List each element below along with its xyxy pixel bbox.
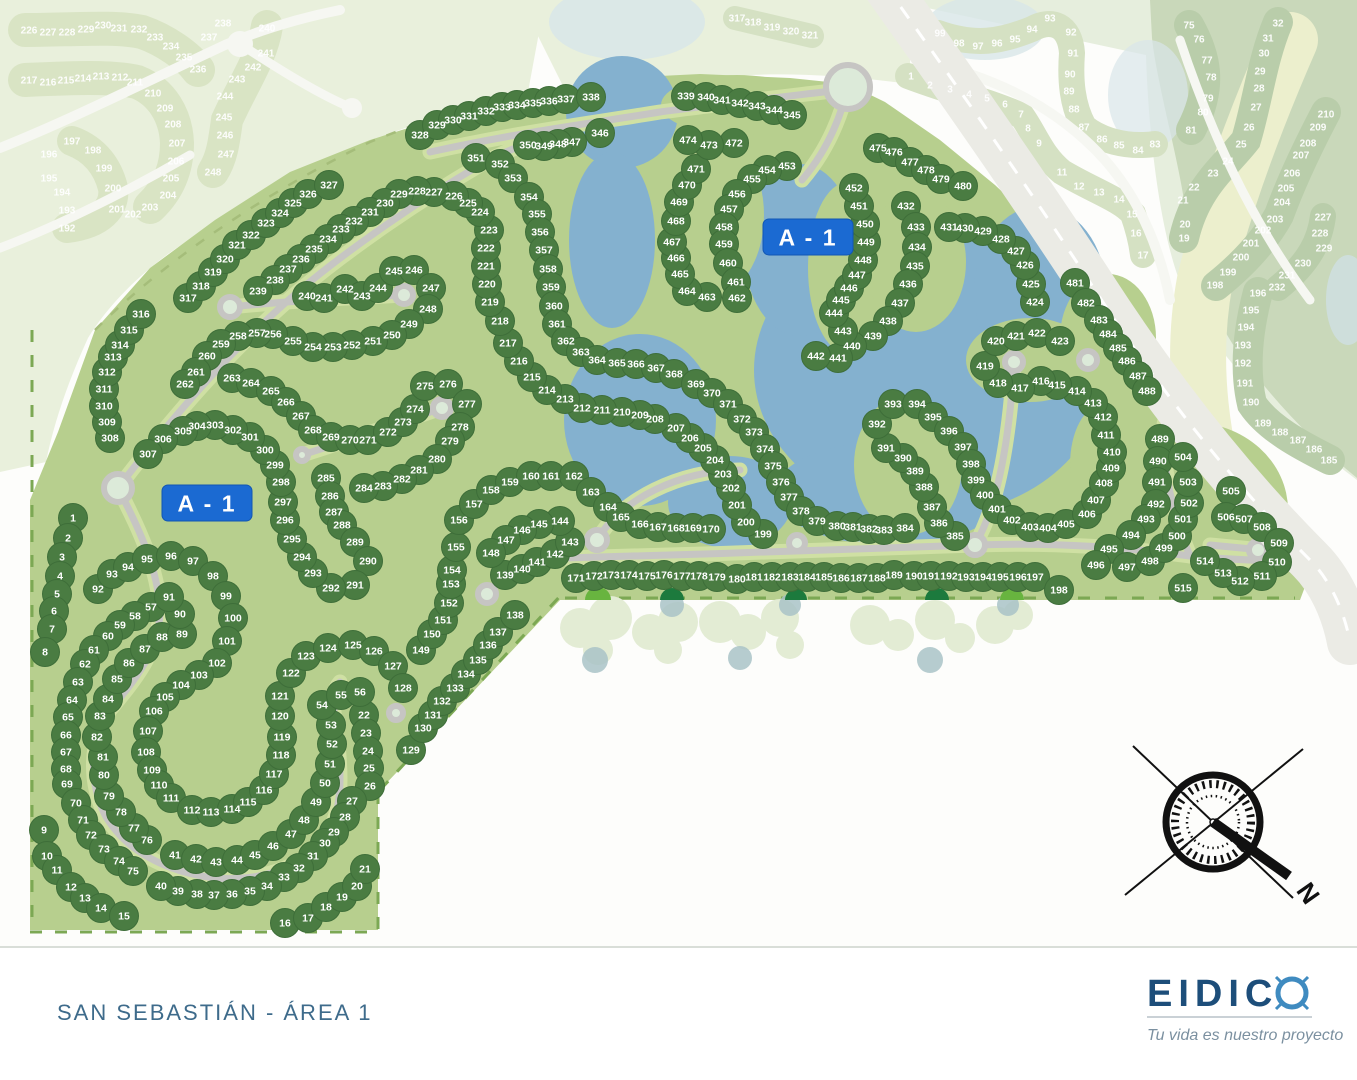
faded-lot-number: 5	[984, 94, 990, 105]
lot-number: 26	[364, 781, 376, 793]
lot-number: 437	[891, 298, 909, 310]
lot-number: 270	[341, 435, 359, 447]
faded-lot-number: 6	[1002, 100, 1008, 111]
lot-number: 371	[719, 399, 737, 411]
faded-lot-number: 247	[218, 150, 235, 161]
lot-number: 511	[1254, 571, 1271, 583]
lot-number: 471	[687, 164, 705, 176]
lot-number: 430	[956, 223, 974, 235]
faded-lot-number: 14	[1113, 195, 1125, 206]
lot-number: 399	[967, 475, 985, 487]
lot-number: 294	[293, 552, 311, 564]
lot-number: 46	[267, 841, 279, 853]
lot-number: 1	[70, 513, 76, 525]
lot-number: 99	[220, 591, 232, 603]
lot-number: 310	[95, 401, 113, 413]
lot-number: 500	[1168, 531, 1186, 543]
lot-number: 86	[123, 658, 135, 670]
faded-lot-number: 320	[783, 27, 800, 38]
lot-number: 174	[620, 570, 638, 582]
lot-number: 298	[272, 477, 290, 489]
lot-number: 482	[1077, 298, 1095, 310]
faded-lot-number: 97	[972, 42, 984, 53]
lot-number: 116	[256, 785, 273, 797]
lot-number: 52	[326, 739, 338, 751]
lot-number: 247	[422, 283, 440, 295]
lot-number: 53	[325, 720, 337, 732]
lot-number: 501	[1174, 514, 1192, 526]
lot-number: 487	[1129, 371, 1147, 383]
lot-number: 439	[864, 331, 882, 343]
lot-number: 287	[325, 507, 343, 519]
lot-number: 388	[915, 482, 933, 494]
faded-lot-number: 243	[229, 75, 246, 86]
faded-lot-number: 78	[1205, 73, 1217, 84]
lot-number: 267	[292, 411, 310, 423]
faded-lot-number: 227	[1315, 213, 1332, 224]
lot-number: 432	[897, 201, 915, 213]
lot-number: 172	[585, 571, 603, 583]
faded-lot-number: 87	[1078, 123, 1090, 134]
lot-number: 27	[346, 796, 358, 808]
area-badge: A - 1	[162, 485, 252, 521]
lot-number: 398	[962, 459, 980, 471]
lot-number: 70	[70, 798, 82, 810]
lot-number: 449	[857, 237, 875, 249]
lot-number: 66	[60, 730, 72, 742]
lot-number: 251	[364, 336, 382, 348]
lot-number: 109	[143, 765, 161, 777]
faded-lot-number: 32	[1272, 19, 1284, 30]
lot-number: 377	[780, 492, 798, 504]
lot-number: 442	[807, 351, 825, 363]
lot-number: 431	[940, 222, 958, 234]
lot-number: 163	[582, 487, 600, 499]
lot-number: 496	[1087, 560, 1105, 572]
faded-lot-number: 192	[1235, 359, 1252, 370]
lot-number: 8	[42, 647, 48, 659]
lot-number: 131	[424, 710, 442, 722]
faded-lot-number: 318	[745, 18, 762, 29]
lot-number: 309	[98, 417, 116, 429]
lot-number: 474	[679, 135, 697, 147]
lot-number: 481	[1066, 278, 1084, 290]
lot-number: 281	[410, 465, 428, 477]
lot-number: 44	[231, 855, 243, 867]
lot-number: 293	[304, 568, 322, 580]
lot-number: 113	[203, 807, 220, 819]
lot-number: 80	[98, 770, 110, 782]
lot-number: 7	[49, 624, 55, 636]
lot-number: 409	[1102, 463, 1120, 475]
faded-lot-number: 209	[157, 104, 174, 115]
faded-lot-number: 232	[131, 25, 148, 36]
lot-number: 459	[715, 239, 733, 251]
lot-number: 16	[279, 918, 291, 930]
lot-number: 43	[210, 857, 222, 869]
lot-number: 498	[1141, 556, 1159, 568]
lot-number: 263	[223, 373, 241, 385]
lot-number: 245	[385, 266, 403, 278]
lot-number: 391	[877, 443, 895, 455]
lot-number: 341	[713, 95, 731, 107]
lot-number: 202	[722, 483, 740, 495]
lot-number: 433	[907, 222, 925, 234]
lot-number: 62	[79, 659, 91, 671]
lot-number: 387	[923, 502, 941, 514]
lot-number: 2	[65, 533, 71, 545]
lot-number: 196	[1009, 572, 1027, 584]
lot-number: 170	[702, 524, 720, 536]
lot-number: 301	[241, 432, 259, 444]
lot-number: 103	[190, 670, 208, 682]
lot-number: 157	[465, 499, 483, 511]
lot-number: 407	[1087, 495, 1105, 507]
faded-lot-number: 16	[1130, 229, 1142, 240]
lot-number: 359	[542, 282, 560, 294]
lot-number: 146	[513, 525, 531, 537]
faded-lot-number: 226	[21, 26, 38, 37]
lot-number: 279	[441, 436, 459, 448]
lot-number: 440	[843, 341, 861, 353]
lot-number: 392	[868, 419, 886, 431]
lot-number: 268	[304, 425, 322, 437]
lot-number: 393	[884, 399, 902, 411]
faded-lot-number: 79	[1202, 94, 1214, 105]
lot-number: 344	[765, 105, 783, 117]
faded-lot-number: 80	[1197, 108, 1209, 119]
lot-number: 466	[667, 253, 685, 265]
faded-lot-number: 24	[1222, 157, 1234, 168]
lot-number: 159	[501, 477, 519, 489]
lot-number: 227	[425, 187, 443, 199]
lot-number: 57	[145, 602, 157, 614]
faded-lot-number: 235	[176, 53, 193, 64]
lot-number: 302	[224, 425, 242, 437]
lot-number: 295	[283, 534, 301, 546]
lot-number: 155	[447, 542, 465, 554]
lot-number: 45	[249, 850, 261, 862]
lot-number: 101	[218, 636, 236, 648]
lot-number: 384	[896, 523, 914, 535]
lot-number: 117	[266, 769, 283, 781]
lot-number: 12	[65, 882, 77, 894]
lot-number: 152	[440, 598, 458, 610]
lot-number: 490	[1149, 456, 1167, 468]
faded-lot-number: 210	[145, 89, 162, 100]
lot-number: 469	[670, 197, 688, 209]
lot-number: 492	[1147, 499, 1165, 511]
lot-number: 314	[111, 340, 129, 352]
lot-number: 126	[365, 646, 383, 658]
lot-number: 454	[758, 165, 776, 177]
lot-number: 15	[118, 911, 130, 923]
lot-number: 351	[467, 153, 485, 165]
faded-lot-number: 319	[764, 23, 781, 34]
lot-number: 84	[102, 694, 114, 706]
lot-number: 421	[1007, 331, 1025, 343]
lot-number: 127	[384, 661, 402, 673]
lot-number: 104	[172, 680, 190, 692]
faded-lot-number: 207	[1293, 151, 1310, 162]
lot-number: 110	[151, 780, 168, 792]
faded-lot-number: 245	[216, 113, 233, 124]
lot-number: 212	[573, 403, 591, 415]
lot-number: 395	[924, 412, 942, 424]
lot-number: 195	[991, 572, 1009, 584]
lot-number: 160	[522, 471, 540, 483]
faded-lot-number: 205	[1278, 184, 1295, 195]
lot-number: 148	[482, 548, 500, 560]
faded-lot-number: 228	[1312, 229, 1329, 240]
lot-number: 358	[539, 264, 557, 276]
lot-number: 194	[974, 572, 992, 584]
lot-number: 197	[1026, 572, 1044, 584]
faded-lot-number: 208	[165, 120, 182, 131]
faded-lot-number: 205	[163, 174, 180, 185]
lot-number: 455	[743, 174, 761, 186]
lot-number: 111	[163, 793, 180, 805]
lot-number: 189	[885, 570, 903, 582]
faded-lot-number: 21	[1177, 196, 1189, 207]
lot-number: 4	[57, 571, 63, 583]
lot-number: 513	[1214, 568, 1232, 580]
lot-number: 34	[261, 881, 273, 893]
lot-number: 326	[299, 189, 317, 201]
lot-number: 129	[402, 745, 420, 757]
lot-number: 201	[728, 500, 746, 512]
lot-number: 278	[451, 422, 469, 434]
lot-number: 13	[79, 893, 91, 905]
lot-number: 257	[248, 328, 266, 340]
faded-lot-number: 88	[1068, 105, 1080, 116]
lot-number: 451	[850, 201, 868, 213]
lot-number: 297	[274, 497, 292, 509]
lot-map-page: 1234567891011121314151617181920212223242…	[0, 0, 1357, 1080]
lot-number: 505	[1222, 486, 1240, 498]
faded-lot-number: 30	[1258, 49, 1270, 60]
lot-number: 82	[91, 732, 103, 744]
faded-lot-number: 207	[169, 139, 186, 150]
lot-number: 179	[708, 572, 726, 584]
lot-number: 420	[987, 336, 1005, 348]
lot-number: 285	[317, 473, 335, 485]
lot-number: 342	[731, 98, 749, 110]
lot-number: 54	[316, 700, 328, 712]
lot-number: 64	[66, 695, 78, 707]
faded-lot-number: 22	[1188, 183, 1200, 194]
faded-lot-number: 91	[1067, 49, 1079, 60]
faded-lot-number: 244	[217, 92, 234, 103]
lot-number: 136	[479, 640, 497, 652]
lot-number: 386	[930, 518, 948, 530]
lot-number: 355	[528, 209, 546, 221]
lot-number: 313	[104, 352, 122, 364]
faded-lot-number: 201	[109, 205, 126, 216]
lot-number: 3	[59, 552, 65, 564]
faded-lot-number: 185	[1321, 456, 1338, 467]
faded-lot-number: 31	[1262, 34, 1274, 45]
lot-number: 303	[206, 420, 224, 432]
lot-number: 85	[111, 674, 123, 686]
faded-lot-number: 241	[258, 49, 275, 60]
lot-number: 19	[336, 892, 348, 904]
faded-lot-number: 191	[1237, 379, 1254, 390]
lot-number: 188	[868, 573, 886, 585]
lot-number: 221	[477, 261, 495, 273]
lot-number: 226	[445, 191, 463, 203]
lot-number: 299	[266, 460, 284, 472]
lot-number: 307	[139, 449, 157, 461]
lot-number: 506	[1217, 512, 1235, 524]
lot-number: 33	[278, 872, 290, 884]
lot-number: 271	[359, 435, 377, 447]
lot-number: 460	[719, 258, 737, 270]
lot-number: 71	[77, 815, 89, 827]
lot-number: 512	[1231, 576, 1249, 588]
lot-number: 213	[556, 394, 574, 406]
lot-number: 283	[374, 481, 392, 493]
lot-number: 336	[540, 96, 558, 108]
faded-lot-number: 206	[1284, 169, 1301, 180]
lot-number: 402	[1003, 515, 1021, 527]
lot-number: 49	[310, 797, 322, 809]
faded-lot-number: 186	[1306, 445, 1323, 456]
lot-number: 383	[875, 525, 893, 537]
lot-number: 89	[176, 629, 188, 641]
lot-number: 479	[932, 174, 950, 186]
lot-number: 276	[439, 379, 457, 391]
lot-number: 87	[139, 644, 151, 656]
lot-number: 144	[551, 516, 569, 528]
faded-lot-number: 200	[1233, 253, 1250, 264]
lot-number: 108	[137, 747, 155, 759]
lot-number: 312	[98, 367, 116, 379]
lot-number: 515	[1174, 583, 1192, 595]
lot-number: 38	[191, 889, 203, 901]
faded-lot-number: 89	[1063, 87, 1075, 98]
lot-number: 258	[229, 331, 247, 343]
lot-number: 199	[754, 529, 772, 541]
faded-lot-number: 195	[1243, 306, 1260, 317]
lot-number: 121	[271, 691, 289, 703]
faded-lot-number: 190	[1243, 398, 1260, 409]
faded-lot-number: 9	[1036, 139, 1042, 150]
faded-lot-number: 236	[190, 65, 207, 76]
lot-number: 32	[293, 863, 305, 875]
faded-lot-number: 28	[1253, 84, 1265, 95]
lot-number: 158	[482, 485, 500, 497]
lot-number: 210	[613, 407, 631, 419]
lot-number: 214	[538, 385, 556, 397]
lot-number: 93	[106, 569, 118, 581]
lot-number: 339	[677, 91, 695, 103]
compass-north-label: N	[1291, 877, 1326, 910]
faded-lot-number: 8	[1025, 124, 1031, 135]
lot-number: 412	[1094, 412, 1112, 424]
faded-lot-number: 233	[147, 33, 164, 44]
lot-number: 190	[905, 571, 923, 583]
lot-number: 9	[41, 825, 47, 837]
lot-number: 91	[163, 592, 175, 604]
lot-number: 360	[545, 301, 563, 313]
faded-lot-number: 187	[1290, 436, 1307, 447]
faded-lot-number: 202	[125, 210, 142, 221]
lot-number: 185	[815, 572, 833, 584]
lot-number: 457	[720, 204, 738, 216]
lot-number: 465	[671, 269, 689, 281]
lot-number: 72	[85, 830, 97, 842]
faded-lot-number: 19	[1178, 234, 1190, 245]
lot-number: 162	[565, 471, 583, 483]
lot-number: 217	[499, 338, 517, 350]
lot-number: 356	[531, 227, 549, 239]
lot-number: 317	[179, 293, 197, 305]
lot-number: 180	[728, 574, 746, 586]
lot-number: 182	[763, 572, 781, 584]
lot-number: 18	[320, 902, 332, 914]
lot-number: 289	[346, 537, 364, 549]
faded-lot-number: 196	[1250, 289, 1267, 300]
faded-lot-number: 234	[163, 42, 180, 53]
faded-lot-number: 2	[927, 81, 933, 92]
lot-number: 319	[204, 267, 222, 279]
lot-number: 373	[745, 427, 763, 439]
faded-lot-number: 12	[1073, 182, 1085, 193]
lot-number: 350	[519, 140, 537, 152]
lot-number: 452	[845, 183, 863, 195]
faded-lot-number: 93	[1044, 14, 1056, 25]
faded-lot-number: 248	[205, 168, 222, 179]
lot-number: 435	[906, 261, 924, 273]
lot-number: 167	[649, 522, 667, 534]
lot-number: 183	[781, 572, 799, 584]
faded-lot-number: 193	[1235, 341, 1252, 352]
lot-number: 118	[273, 750, 290, 762]
lot-number: 241	[315, 293, 333, 305]
faded-lot-number: 15	[1126, 210, 1138, 221]
faded-lot-number: 230	[1295, 259, 1312, 270]
lot-number: 68	[60, 764, 72, 776]
lot-number: 461	[727, 277, 745, 289]
lot-number: 211	[594, 405, 611, 417]
lot-number: 186	[832, 573, 850, 585]
lot-number: 20	[351, 881, 363, 893]
lot-number: 50	[319, 778, 331, 790]
lot-number: 318	[192, 281, 210, 293]
lot-number: 175	[638, 571, 656, 583]
faded-lot-number: 231	[1279, 271, 1296, 282]
lot-number: 193	[957, 572, 975, 584]
lot-number: 124	[319, 643, 337, 655]
lot-number: 169	[684, 523, 702, 535]
lot-number: 198	[1050, 585, 1068, 597]
lot-number: 97	[187, 556, 199, 568]
lot-number: 410	[1103, 447, 1121, 459]
faded-lot-number: 84	[1132, 146, 1144, 157]
lot-number: 114	[224, 804, 241, 816]
lot-number: 273	[394, 417, 412, 429]
lot-number: 250	[383, 330, 401, 342]
lot-number: 95	[141, 554, 153, 566]
lot-number: 385	[946, 531, 964, 543]
lot-number: 151	[434, 615, 452, 627]
lot-number: 275	[416, 381, 434, 393]
lot-number: 338	[582, 92, 600, 104]
lot-number: 23	[360, 728, 372, 740]
lot-number: 316	[132, 309, 150, 321]
faded-lot-number: 29	[1254, 67, 1266, 78]
